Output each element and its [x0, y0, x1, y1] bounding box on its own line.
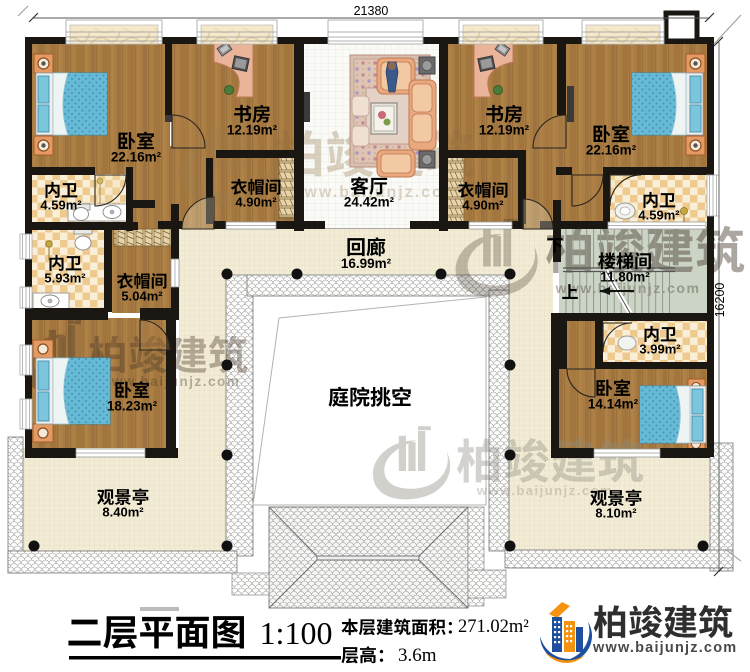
svg-text:14.14m²: 14.14m² — [588, 396, 639, 411]
svg-text:3.99m²: 3.99m² — [639, 341, 681, 356]
svg-text:22.16m²: 22.16m² — [111, 150, 162, 165]
svg-text:4.90m²: 4.90m² — [235, 194, 277, 209]
svg-text:3.6m: 3.6m — [398, 645, 437, 666]
svg-text:18.23m²: 18.23m² — [107, 398, 158, 413]
svg-text:21380: 21380 — [354, 4, 389, 18]
svg-text:271.02m²: 271.02m² — [458, 617, 529, 637]
svg-text:4.90m²: 4.90m² — [462, 197, 504, 212]
svg-text:8.10m²: 8.10m² — [595, 506, 637, 521]
svg-text:12.19m²: 12.19m² — [479, 123, 530, 138]
svg-text:8.40m²: 8.40m² — [102, 505, 144, 520]
svg-text:5.04m²: 5.04m² — [121, 288, 163, 303]
svg-text:22.16m²: 22.16m² — [586, 143, 637, 158]
svg-text:1:100: 1:100 — [260, 615, 333, 651]
svg-text:16200: 16200 — [713, 283, 727, 318]
svg-text:16.99m²: 16.99m² — [341, 256, 392, 271]
svg-text:www.baijunjz.com: www.baijunjz.com — [592, 640, 737, 656]
svg-text:12.19m²: 12.19m² — [227, 123, 278, 138]
svg-text:11.80m²: 11.80m² — [600, 269, 650, 284]
svg-text:4.59m²: 4.59m² — [638, 207, 680, 222]
svg-text:24.42m²: 24.42m² — [344, 195, 395, 210]
svg-text:4.59m²: 4.59m² — [40, 197, 82, 212]
svg-text:5.93m²: 5.93m² — [44, 270, 86, 285]
